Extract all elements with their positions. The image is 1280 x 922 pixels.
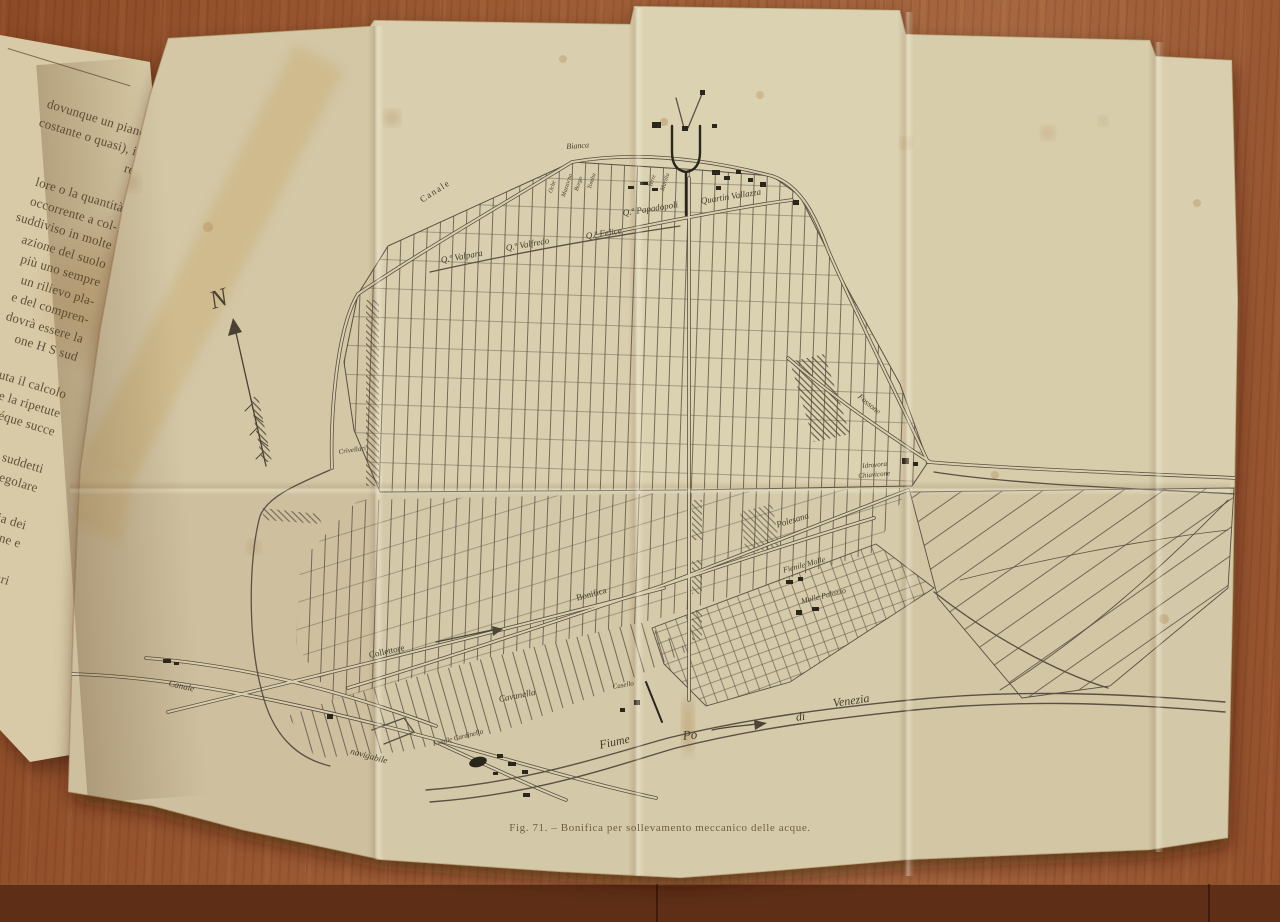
foldout-map-sheet — [0, 0, 1280, 922]
figure-caption: Fig. 71. – Bonifica per sollevamento mec… — [400, 822, 920, 834]
photo-scene: dovunque un piano costante o quasi), il … — [0, 0, 1280, 922]
map-label-di: di — [795, 709, 806, 725]
map-label-po: Po — [682, 726, 698, 743]
map-label-bianca: Bianca — [566, 140, 589, 151]
